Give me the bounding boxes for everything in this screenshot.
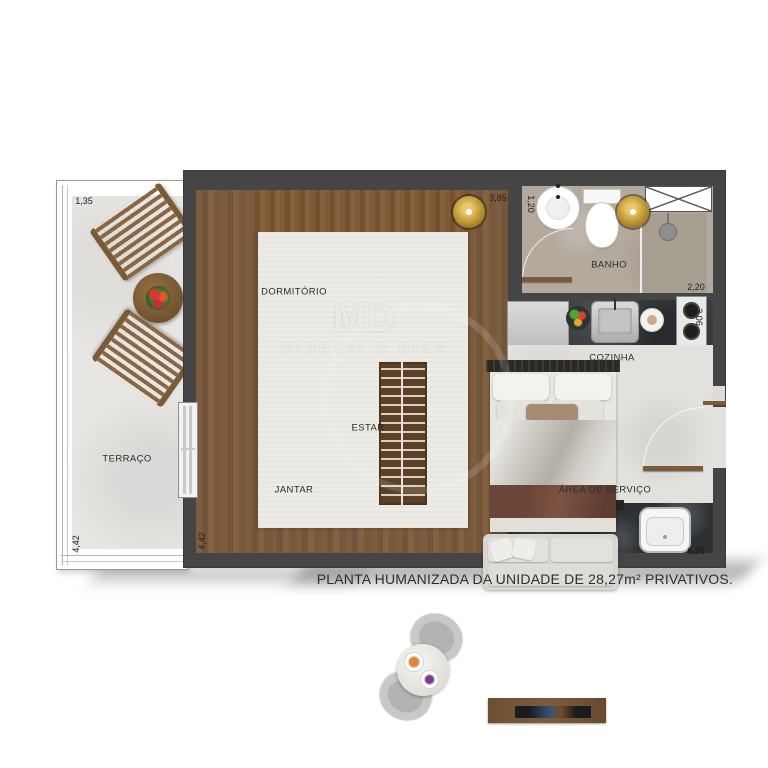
side-window	[711, 386, 725, 402]
flower-centerpiece	[146, 286, 170, 310]
tv	[515, 706, 591, 718]
label-area-servico: ÁREA DE SERVIÇO	[559, 485, 651, 496]
dim-bath-width: 1,20	[526, 195, 536, 213]
toilet-tank	[584, 190, 620, 203]
label-terraco: TERRAÇO	[102, 454, 151, 465]
pendant-lamp	[617, 196, 649, 228]
shower-head-icon	[660, 224, 676, 240]
railing-line	[67, 185, 68, 565]
laundry-tank	[641, 509, 689, 551]
floor-plan-page: MD MINGATI & DIAS TERRAÇO DORMITÓRIO EST…	[0, 0, 768, 768]
sofa-cushion	[551, 538, 613, 562]
pillow	[493, 374, 549, 400]
food-plate	[405, 653, 423, 671]
label-dormitorio: DORMITÓRIO	[261, 287, 327, 298]
dim-living-length: 4,42	[197, 532, 207, 550]
dim-bath-length: 2,20	[687, 282, 705, 292]
dim-bedroom-width: 3,85	[489, 193, 507, 203]
railing-line	[62, 185, 63, 565]
food-plate	[421, 671, 438, 688]
window-sill	[703, 401, 726, 405]
bed-sheet	[490, 518, 616, 532]
dim-terrace-width: 1,35	[75, 196, 93, 206]
shaft-marker	[645, 186, 712, 212]
railing-line	[61, 555, 187, 556]
dining-table	[397, 644, 449, 696]
bathroom-sink	[537, 187, 579, 229]
faucet-icon	[556, 184, 560, 188]
label-cozinha: COZINHA	[589, 353, 635, 364]
tv-console	[488, 698, 606, 723]
pendant-lamp	[453, 196, 485, 228]
terrace-railing-frame	[56, 180, 188, 570]
entrance-opening	[713, 407, 726, 468]
faucet-icon	[556, 195, 560, 199]
bed	[490, 372, 616, 532]
fruit-bowl	[566, 306, 590, 330]
shower-floor	[643, 213, 707, 293]
throw-pillow	[511, 537, 537, 561]
sliding-door	[178, 402, 198, 498]
plate	[641, 309, 663, 331]
unit-walls	[183, 170, 726, 568]
duvet	[490, 420, 616, 486]
wood-slat-panel	[379, 362, 427, 505]
dim-terrace-length: 4,42	[71, 535, 81, 553]
bathroom-door-leaf	[522, 277, 572, 282]
railing-line	[61, 561, 187, 562]
entrance-door-leaf	[643, 466, 703, 471]
bedside-counter	[250, 190, 468, 232]
label-banho: BANHO	[591, 260, 627, 271]
faucet-icon	[614, 298, 616, 310]
label-jantar: JANTAR	[275, 485, 314, 496]
plan-caption: PLANTA HUMANIZADA DA UNIDADE DE 28,27m² …	[317, 571, 733, 587]
label-estar: ESTAR	[352, 423, 385, 434]
toilet-bowl	[586, 203, 618, 247]
kitchen-sink	[592, 302, 638, 342]
pillow	[555, 374, 611, 400]
dim-kitchen-depth: 3,06	[694, 308, 704, 326]
terrace-table	[133, 273, 183, 323]
drain-icon	[663, 535, 667, 539]
dim-unit-length: 6,20	[687, 546, 705, 556]
